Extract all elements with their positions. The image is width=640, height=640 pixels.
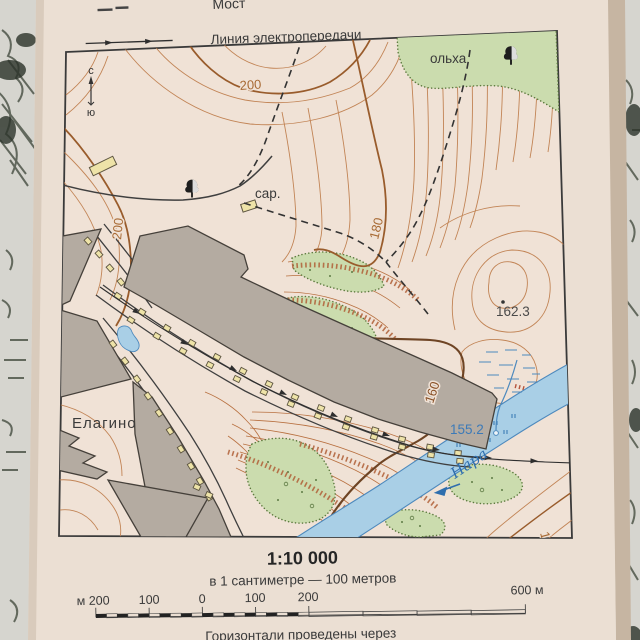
settlement-label: Елагино bbox=[72, 415, 137, 432]
water-gauge-point bbox=[494, 431, 499, 436]
contour-label-200-left: 200 bbox=[109, 217, 126, 240]
water-edge-label: 155.2 bbox=[450, 422, 484, 437]
spot-height-label: 162.3 bbox=[496, 304, 530, 319]
scale-bar-label: 200 bbox=[298, 590, 319, 604]
footer-partial-text: Горизонтали проведены через bbox=[205, 626, 396, 640]
map-photo-svg: Мост Линия электропередачи bbox=[0, 0, 640, 640]
scale-bar-label: м 200 bbox=[77, 593, 110, 608]
legend-partial-label: Мост bbox=[212, 0, 246, 12]
scale-bar-label: 100 bbox=[245, 591, 266, 605]
contour-label-200-top: 200 bbox=[239, 77, 262, 93]
photo-of-textbook-map: { "legend": { "partial_item": {"label": … bbox=[0, 0, 640, 640]
compass-south-label: ю bbox=[87, 107, 95, 119]
scale-ratio: 1:10 000 bbox=[267, 548, 338, 569]
barn-label: сар. bbox=[255, 186, 281, 201]
forest-species-label: ольха bbox=[430, 51, 467, 66]
compass-north-label: с bbox=[88, 65, 94, 77]
scale-bar-label: 0 bbox=[199, 592, 206, 606]
scale-bar-label: 600 м bbox=[510, 583, 543, 598]
scale-bar-label: 100 bbox=[139, 593, 160, 607]
